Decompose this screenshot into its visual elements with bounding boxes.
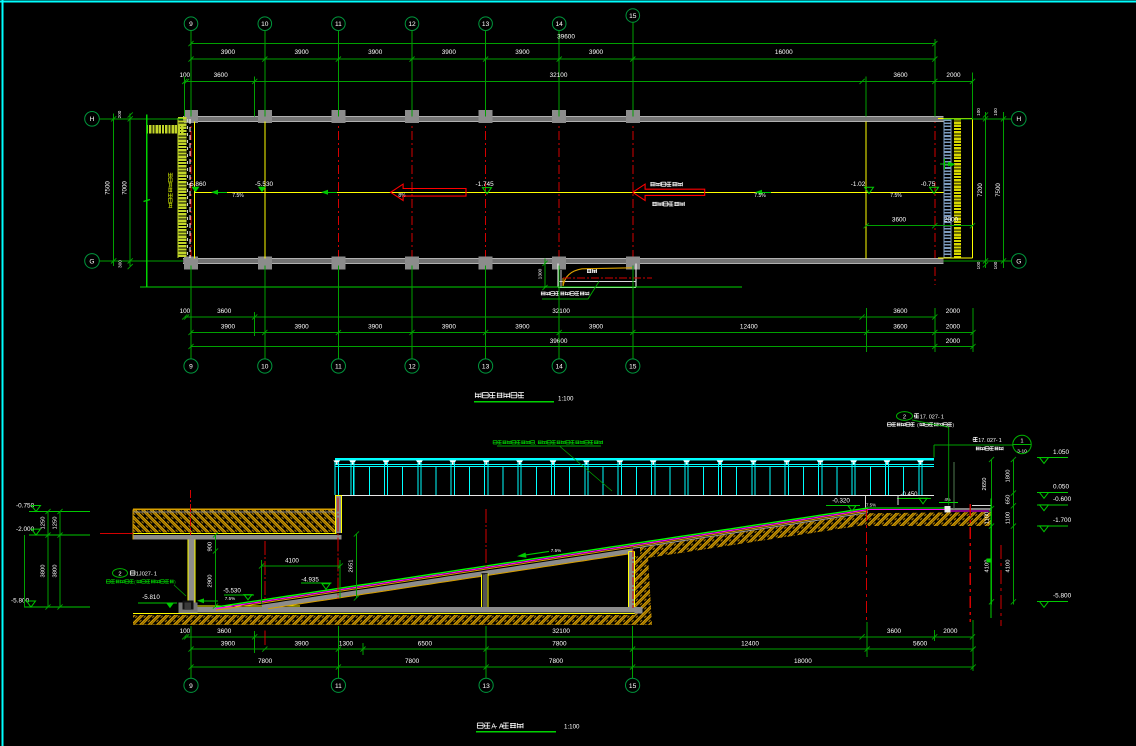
svg-text:3900: 3900	[221, 323, 236, 330]
svg-text:32100: 32100	[552, 628, 570, 635]
svg-text:13: 13	[482, 683, 490, 690]
svg-text:15: 15	[629, 13, 637, 20]
svg-text:7500: 7500	[995, 183, 1002, 197]
svg-text:1300: 1300	[339, 641, 354, 648]
svg-text:32100: 32100	[552, 308, 570, 315]
svg-text:10: 10	[261, 21, 269, 28]
svg-text:5600: 5600	[913, 641, 928, 648]
svg-text:7.5%: 7.5%	[754, 193, 766, 199]
svg-text:11: 11	[335, 683, 342, 690]
svg-text:.: .	[984, 438, 986, 444]
svg-text:9: 9	[189, 683, 193, 690]
svg-text:2000: 2000	[943, 628, 958, 635]
svg-text:12: 12	[408, 364, 416, 371]
svg-text:H: H	[1016, 116, 1021, 123]
svg-text:13: 13	[482, 21, 490, 28]
svg-text:1100: 1100	[1006, 512, 1012, 524]
svg-text:-4.935: -4.935	[301, 576, 319, 583]
svg-text:1300: 1300	[538, 268, 544, 279]
svg-text:2000: 2000	[944, 217, 959, 224]
svg-text:2650: 2650	[982, 478, 988, 491]
svg-text:32100: 32100	[550, 72, 568, 79]
svg-text:7800: 7800	[405, 658, 420, 665]
svg-text:-5.530: -5.530	[223, 588, 241, 595]
svg-text:3900: 3900	[294, 49, 309, 56]
svg-text:7.5%: 7.5%	[866, 503, 876, 508]
svg-text:G: G	[89, 258, 94, 265]
svg-text:H: H	[90, 116, 95, 123]
svg-text:-5.530: -5.530	[255, 181, 274, 188]
svg-text:0.050: 0.050	[1053, 484, 1069, 491]
svg-text:2000: 2000	[946, 323, 961, 330]
svg-text:12400: 12400	[740, 323, 758, 330]
svg-text:7800: 7800	[552, 641, 567, 648]
svg-text:18000: 18000	[794, 658, 812, 665]
svg-text:7500: 7500	[105, 181, 112, 195]
svg-text:2000: 2000	[946, 72, 961, 79]
svg-text:1: 1	[999, 438, 1002, 444]
svg-text:300: 300	[118, 260, 123, 268]
svg-text:11: 11	[335, 364, 342, 371]
svg-text:3600: 3600	[893, 323, 908, 330]
svg-text:-0.320: -0.320	[832, 497, 850, 504]
svg-text:7200: 7200	[977, 183, 984, 197]
svg-text:2: 2	[903, 415, 906, 421]
svg-text:11: 11	[335, 21, 342, 28]
svg-text:-5.800: -5.800	[1053, 593, 1072, 600]
svg-text:7800: 7800	[549, 658, 564, 665]
svg-text:14: 14	[556, 364, 564, 371]
svg-text:3600: 3600	[887, 628, 902, 635]
svg-text:16000: 16000	[775, 49, 793, 56]
svg-text:7.5%: 7.5%	[551, 548, 561, 553]
svg-text:3900: 3900	[294, 323, 309, 330]
svg-text:1: 1	[941, 414, 944, 420]
svg-text:100: 100	[993, 261, 998, 269]
svg-text:100: 100	[993, 108, 998, 116]
svg-text:7800: 7800	[258, 658, 273, 665]
svg-text:100: 100	[180, 308, 191, 315]
svg-text:9: 9	[189, 364, 193, 371]
svg-text:2651: 2651	[349, 560, 355, 573]
svg-text:3600: 3600	[214, 72, 229, 79]
svg-text:39600: 39600	[557, 34, 575, 41]
svg-text:-5.860: -5.860	[188, 181, 207, 188]
svg-text:3900: 3900	[589, 49, 604, 56]
svg-text:7.5%: 7.5%	[890, 193, 902, 199]
svg-text:3-10: 3-10	[1017, 449, 1027, 455]
svg-text:9: 9	[189, 21, 193, 28]
svg-text:1: 1	[1020, 438, 1023, 444]
svg-text:4100: 4100	[285, 557, 299, 564]
svg-text:900: 900	[207, 542, 213, 552]
svg-text:-0.75: -0.75	[921, 181, 936, 188]
svg-text:4100: 4100	[1006, 560, 1012, 573]
svg-text:3900: 3900	[515, 49, 530, 56]
svg-text:3600: 3600	[893, 72, 908, 79]
svg-text:6500: 6500	[418, 641, 433, 648]
svg-text:-1.02: -1.02	[851, 181, 866, 188]
svg-text:1.050: 1.050	[1053, 449, 1069, 456]
svg-text:15: 15	[629, 683, 637, 690]
svg-text:1250: 1250	[41, 517, 47, 530]
svg-text:10: 10	[261, 364, 269, 371]
svg-text:7.5%: 7.5%	[225, 596, 235, 601]
svg-text:2: 2	[118, 572, 121, 578]
svg-text:-1.745: -1.745	[476, 181, 495, 188]
svg-text:100: 100	[976, 261, 981, 269]
svg-text:3600: 3600	[217, 308, 232, 315]
svg-text:2000: 2000	[946, 338, 961, 345]
svg-text:3800: 3800	[41, 565, 47, 578]
svg-text:3900: 3900	[515, 323, 530, 330]
svg-text:3600: 3600	[893, 308, 908, 315]
svg-text:3900: 3900	[294, 641, 309, 648]
svg-text:1100: 1100	[985, 512, 991, 524]
svg-text:-0.600: -0.600	[1053, 496, 1072, 503]
svg-text:100: 100	[976, 108, 981, 116]
svg-text:650: 650	[1006, 495, 1012, 505]
svg-text:-5.810: -5.810	[142, 594, 160, 601]
svg-text:1:100: 1:100	[564, 724, 580, 731]
svg-text:-: -	[151, 572, 153, 578]
svg-text:4%: 4%	[944, 497, 950, 502]
svg-text:3900: 3900	[442, 323, 457, 330]
svg-text:2000: 2000	[946, 308, 961, 315]
svg-text:1250: 1250	[53, 517, 59, 530]
svg-text:,: ,	[535, 440, 536, 445]
svg-text:1:100: 1:100	[558, 395, 574, 402]
svg-text:3600: 3600	[892, 217, 907, 224]
svg-text:7.5%: 7.5%	[232, 193, 244, 199]
svg-text:2900: 2900	[207, 575, 213, 588]
svg-text:15: 15	[629, 364, 637, 371]
svg-text:1: 1	[154, 572, 157, 578]
svg-text:1800: 1800	[1006, 470, 1012, 483]
svg-text:3900: 3900	[368, 323, 383, 330]
svg-text:-: -	[938, 414, 940, 420]
svg-text:13: 13	[482, 364, 490, 371]
svg-text:3800: 3800	[53, 565, 59, 578]
svg-text:3600: 3600	[217, 628, 232, 635]
svg-text:3900: 3900	[221, 641, 236, 648]
svg-text:12400: 12400	[741, 641, 759, 648]
svg-text:14: 14	[556, 21, 564, 28]
svg-text:3900: 3900	[589, 323, 604, 330]
svg-text:3900: 3900	[221, 49, 236, 56]
svg-text:3900: 3900	[368, 49, 383, 56]
svg-text:7000: 7000	[121, 181, 128, 195]
svg-text:12: 12	[408, 21, 416, 28]
svg-text:-0.450: -0.450	[900, 492, 918, 498]
svg-text:200: 200	[117, 110, 122, 118]
svg-text:-: -	[996, 438, 998, 444]
svg-text:G: G	[1016, 258, 1021, 265]
svg-text:-1.700: -1.700	[1053, 517, 1072, 524]
svg-text:3900: 3900	[442, 49, 457, 56]
